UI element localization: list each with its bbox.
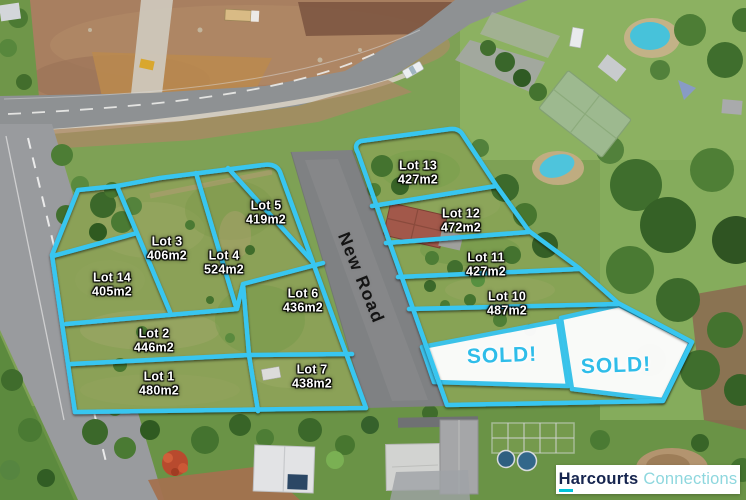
label-overlay: Lot 1 480m2 Lot 2 446m2 Lot 3 406m2 Lot … (0, 0, 746, 500)
lot-area: 487m2 (487, 304, 527, 318)
lot-name: Lot 13 (398, 159, 438, 173)
lot-label-lot-5: Lot 5 419m2 (246, 199, 286, 228)
lot-name: Lot 14 (92, 271, 132, 285)
lot-label-lot-3: Lot 3 406m2 (147, 235, 187, 264)
lot-name: Lot 4 (204, 249, 244, 263)
lot-label-lot-11: Lot 11 427m2 (466, 251, 506, 280)
lot-name: Lot 5 (246, 199, 286, 213)
sold-badge: SOLD! (580, 353, 651, 379)
lot-label-lot-6: Lot 6 436m2 (283, 287, 323, 316)
lot-name: Lot 3 (147, 235, 187, 249)
agency-logo: Harcourts Connections (556, 465, 740, 494)
lot-name: Lot 2 (134, 327, 174, 341)
agency-name-text: Harcourts (559, 470, 639, 488)
lot-area: 472m2 (441, 221, 481, 235)
lot-area: 405m2 (92, 285, 132, 299)
lot-area: 436m2 (283, 301, 323, 315)
lot-label-lot-1: Lot 1 480m2 (139, 370, 179, 399)
lot-area: 446m2 (134, 341, 174, 355)
aerial-lot-map: Lot 1 480m2 Lot 2 446m2 Lot 3 406m2 Lot … (0, 0, 746, 500)
lot-area: 419m2 (246, 213, 286, 227)
lot-label-lot-14: Lot 14 405m2 (92, 271, 132, 300)
lot-area: 438m2 (292, 377, 332, 391)
lot-label-lot-13: Lot 13 427m2 (398, 159, 438, 188)
lot-area: 480m2 (139, 384, 179, 398)
sold-badge: SOLD! (466, 343, 537, 369)
lot-label-lot-12: Lot 12 472m2 (441, 207, 481, 236)
lot-name: Lot 12 (441, 207, 481, 221)
agency-suffix: Connections (643, 470, 737, 489)
lot-label-lot-4: Lot 4 524m2 (204, 249, 244, 278)
lot-label-lot-7: Lot 7 438m2 (292, 363, 332, 392)
lot-name: Lot 7 (292, 363, 332, 377)
agency-name: Harcourts (559, 470, 639, 489)
lot-area: 524m2 (204, 263, 244, 277)
new-road-label: New Road (333, 229, 389, 326)
lot-label-lot-10: Lot 10 487m2 (487, 290, 527, 319)
lot-name: Lot 6 (283, 287, 323, 301)
lot-name: Lot 11 (466, 251, 506, 265)
lot-area: 406m2 (147, 249, 187, 263)
lot-label-lot-2: Lot 2 446m2 (134, 327, 174, 356)
lot-area: 427m2 (398, 173, 438, 187)
lot-name: Lot 1 (139, 370, 179, 384)
lot-name: Lot 10 (487, 290, 527, 304)
lot-area: 427m2 (466, 265, 506, 279)
logo-underline (559, 489, 573, 492)
